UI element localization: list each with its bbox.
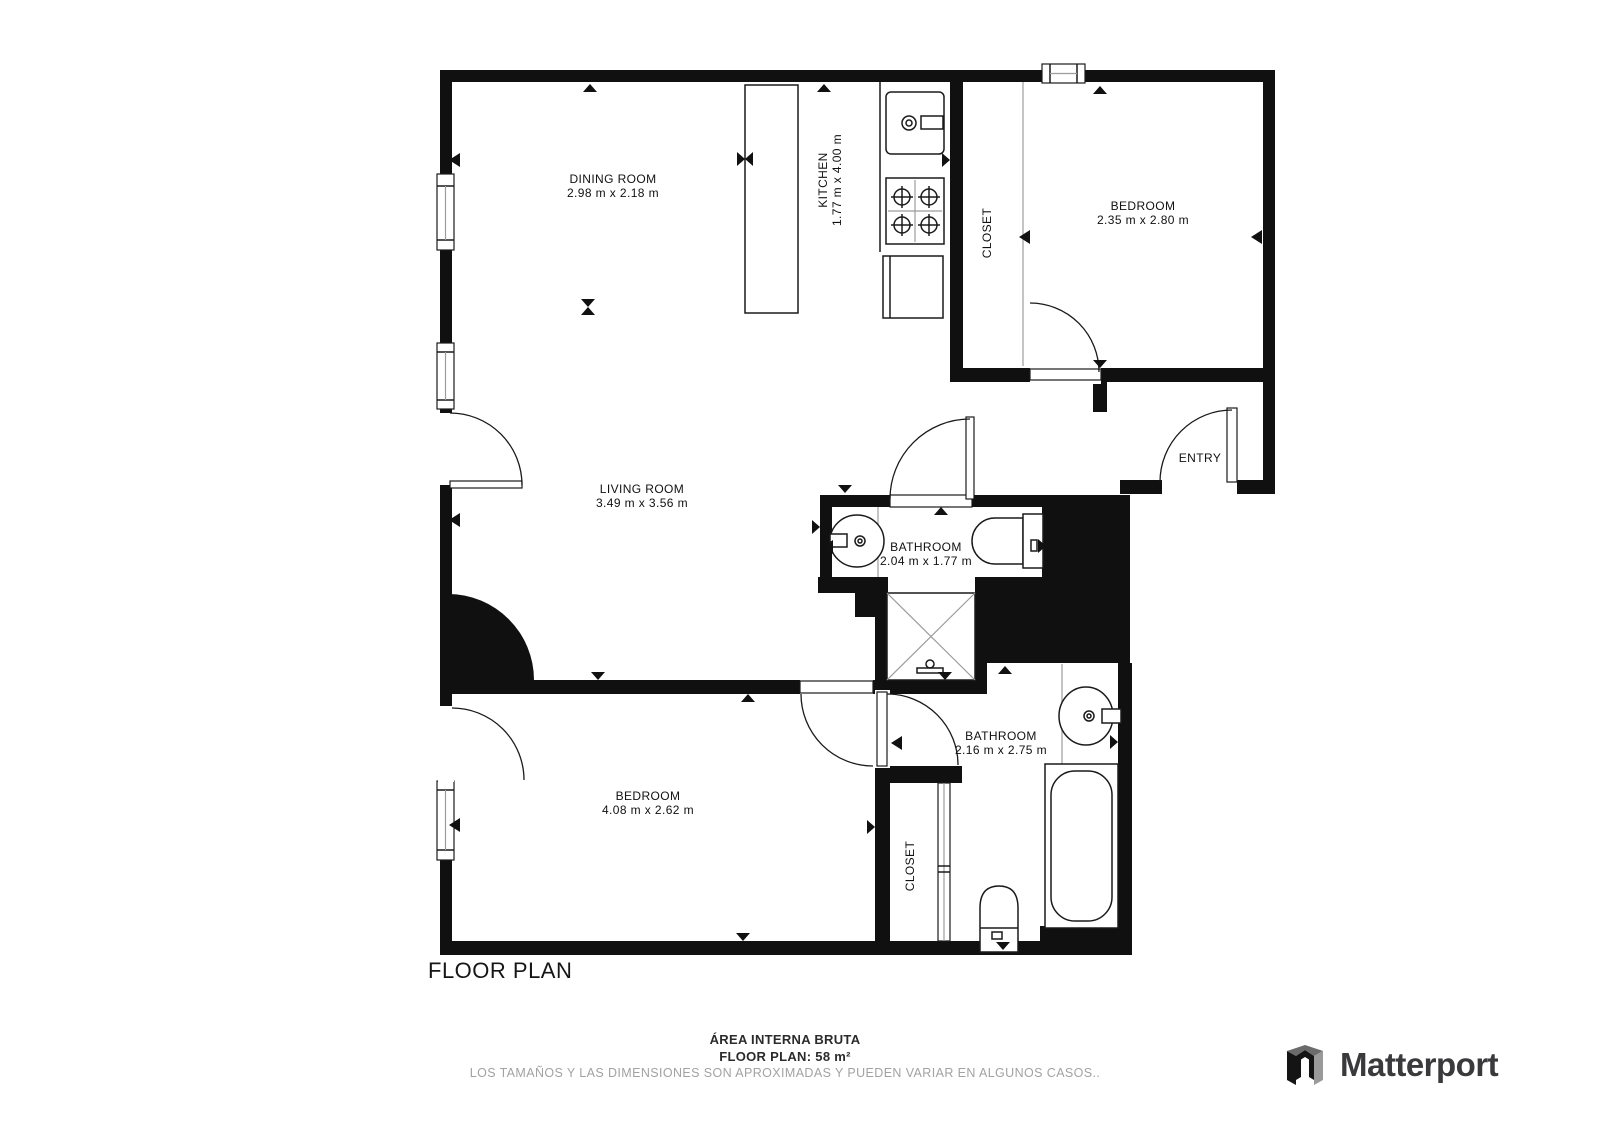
scan-direction-triangle xyxy=(998,666,1012,674)
scan-direction-triangle xyxy=(891,736,902,750)
room-label-bathroom-2: BATHROOM2.16 m x 2.75 m xyxy=(955,729,1047,757)
scan-direction-triangle xyxy=(1110,735,1118,749)
kitchen-island xyxy=(745,85,798,313)
matterport-wordmark: Matterport xyxy=(1340,1046,1498,1084)
stove xyxy=(886,178,944,244)
sink xyxy=(830,515,884,567)
floor-plan-canvas: DINING ROOM2.98 m x 2.18 mKITCHEN1.77 m … xyxy=(0,0,1600,1132)
room-label-living-room: LIVING ROOM3.49 m x 3.56 m xyxy=(596,482,688,510)
bathtub xyxy=(1045,764,1118,928)
scan-direction-triangle xyxy=(1251,230,1262,244)
room-label-kitchen: KITCHEN1.77 m x 4.00 m xyxy=(816,134,844,226)
scan-direction-triangle xyxy=(1093,86,1107,94)
room-label-bathroom-1: BATHROOM2.04 m x 1.77 m xyxy=(880,540,972,568)
scan-direction-triangle xyxy=(736,933,750,941)
scan-direction-triangle xyxy=(581,299,595,307)
door-bedroom-top xyxy=(1030,303,1101,384)
disclaimer-text: LOS TAMAÑOS Y LAS DIMENSIONES SON APROXI… xyxy=(470,1066,1101,1080)
area-label: ÁREA INTERNA BRUTA xyxy=(470,1032,1101,1047)
closet-slider-door xyxy=(938,783,950,941)
scan-direction-triangle xyxy=(934,507,948,515)
floor-plan-page: DINING ROOM2.98 m x 2.18 mKITCHEN1.77 m … xyxy=(0,0,1600,1132)
window xyxy=(1042,64,1085,83)
door-bedroom-balcony xyxy=(438,706,524,782)
scan-direction-triangle xyxy=(591,672,605,680)
scan-direction-triangle xyxy=(838,485,852,493)
scan-direction-triangle xyxy=(741,694,755,702)
bathroom2-fixtures xyxy=(938,687,1121,952)
scan-direction-triangle xyxy=(583,84,597,92)
door-bathroom-1 xyxy=(890,417,974,507)
scan-direction-triangle xyxy=(817,84,831,92)
door-living-balcony xyxy=(438,413,522,488)
scan-direction-triangle xyxy=(1019,230,1030,244)
kitchen-sink xyxy=(886,92,944,154)
shower xyxy=(887,593,975,680)
scan-direction-triangle xyxy=(812,520,820,534)
room-label-closet-bottom: CLOSET xyxy=(903,841,917,892)
scan-direction-triangle xyxy=(942,153,950,167)
kitchen-fixtures xyxy=(745,85,944,318)
footer-area-block: ÁREA INTERNA BRUTA FLOOR PLAN: 58 m² LOS… xyxy=(470,1032,1101,1080)
door-bathroom-2 xyxy=(875,690,958,768)
scan-direction-triangle xyxy=(737,152,745,166)
window xyxy=(437,781,454,860)
refrigerator xyxy=(883,256,943,318)
floor-plan-heading: FLOOR PLAN xyxy=(428,958,572,984)
window xyxy=(437,174,454,250)
room-label-dining-room: DINING ROOM2.98 m x 2.18 m xyxy=(567,172,659,200)
scan-direction-triangle xyxy=(867,820,875,834)
room-label-closet-top: CLOSET xyxy=(980,208,994,259)
room-label-bedroom-bottom: BEDROOM4.08 m x 2.62 m xyxy=(602,789,694,817)
filled-door-swing xyxy=(448,594,534,680)
room-label-bedroom-top: BEDROOM2.35 m x 2.80 m xyxy=(1097,199,1189,227)
matterport-logo: Matterport xyxy=(1282,1042,1498,1088)
area-value: FLOOR PLAN: 58 m² xyxy=(470,1049,1101,1064)
door-bedroom-bottom xyxy=(800,678,873,766)
sink xyxy=(1059,687,1121,745)
toilet xyxy=(972,514,1043,568)
window xyxy=(437,343,454,409)
room-label-entry: ENTRY xyxy=(1179,451,1221,465)
scan-direction-triangle xyxy=(581,307,595,315)
matterport-m-icon xyxy=(1282,1042,1328,1088)
